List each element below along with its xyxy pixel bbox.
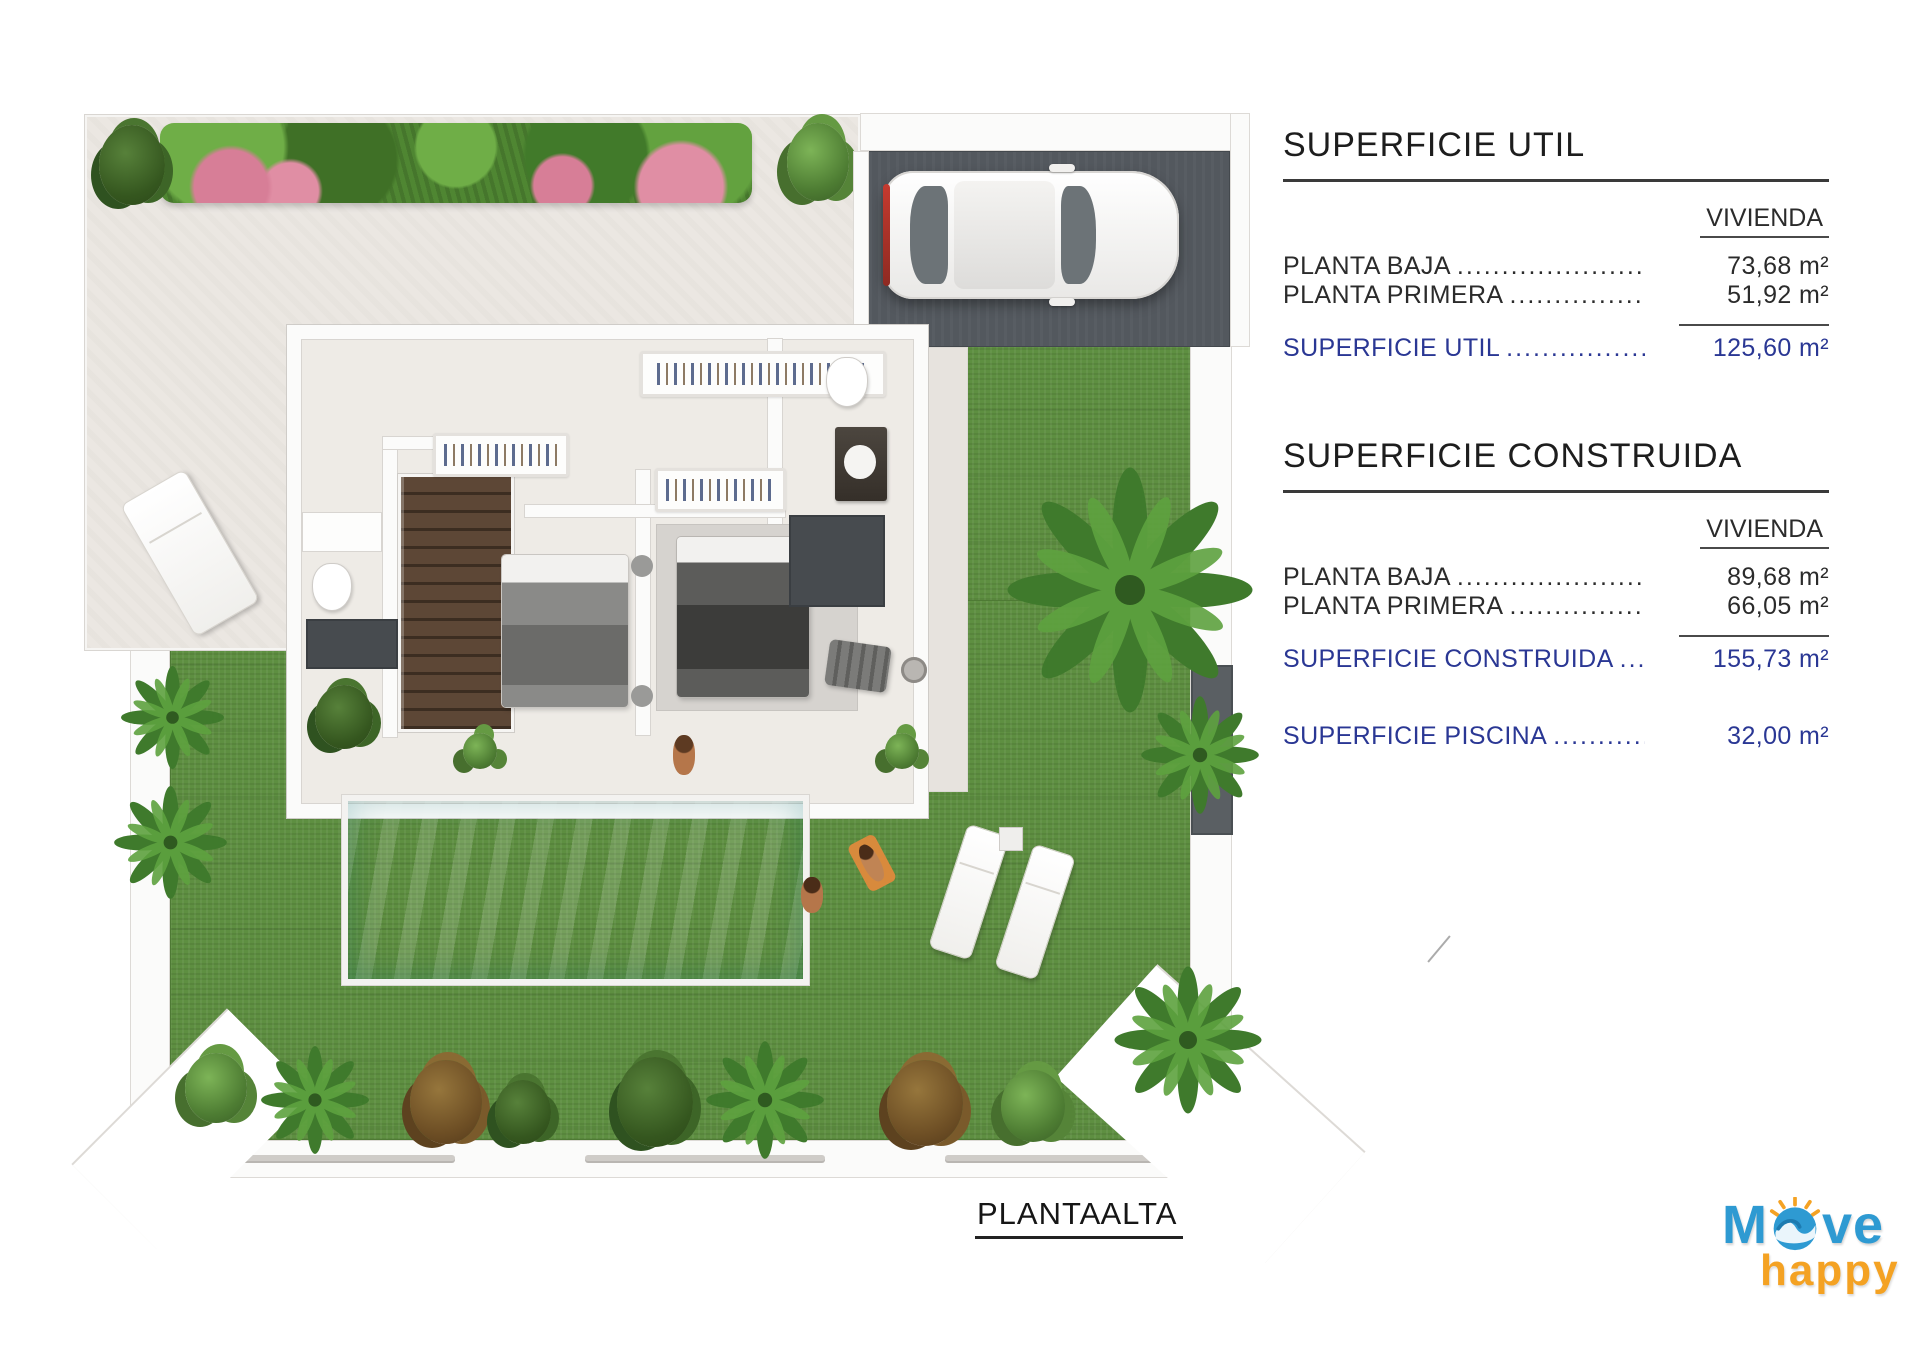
garden-bush	[617, 1057, 693, 1147]
wardrobe	[433, 433, 569, 477]
bed-throw	[502, 625, 628, 685]
total-row-superficie-piscina: SUPERFICIE PISCINA .....................…	[1283, 722, 1829, 751]
deck-table	[901, 657, 927, 683]
side-table	[999, 827, 1023, 851]
data-row-planta-baja: PLANTA BAJA ............................…	[1283, 252, 1829, 281]
logo-sun-wave-icon	[1769, 1197, 1821, 1253]
bathroom-vanity	[835, 427, 887, 501]
data-row-planta-primera: PLANTA PRIMERA .........................…	[1283, 281, 1829, 310]
deck-chaise	[824, 639, 892, 693]
fern	[120, 665, 225, 770]
stray-mark	[1427, 935, 1450, 962]
car-taillight	[883, 184, 890, 286]
car-mirror	[1049, 298, 1076, 306]
deck-plant	[463, 733, 497, 769]
palm-plant	[260, 1045, 370, 1155]
palm-plant	[705, 1040, 825, 1160]
interior-wall	[383, 437, 397, 737]
shower	[306, 619, 398, 669]
deck-plant	[885, 733, 919, 769]
staircase	[401, 477, 511, 729]
column-header-vivienda: VIVIENDA	[1283, 515, 1829, 549]
plan-edge-right	[1230, 113, 1250, 347]
swimming-pool	[342, 795, 809, 985]
bathroom-shelf	[303, 513, 381, 551]
nightstand	[631, 555, 653, 577]
potted-plant	[787, 123, 849, 201]
total-row-superficie-construida: SUPERFICIE CONSTRUIDA ..................…	[1283, 645, 1829, 674]
hedge-planter	[160, 123, 752, 203]
total-rule	[1679, 324, 1829, 326]
person-on-deck	[673, 735, 695, 775]
garden-bush	[315, 685, 373, 749]
potted-plant	[99, 125, 165, 205]
logo-word-happy: happy	[1760, 1246, 1912, 1296]
section-title-superficie-util: SUPERFICIE UTIL	[1283, 126, 1829, 182]
bed-throw	[677, 605, 809, 669]
wardrobe	[655, 468, 786, 512]
total-row-superficie-util: SUPERFICIE UTIL ........................…	[1283, 334, 1829, 363]
plan-title: PLANTA ALTA	[975, 1196, 1183, 1239]
car-mirror	[1049, 164, 1076, 172]
data-row-planta-baja: PLANTA BAJA ............................…	[1283, 563, 1829, 592]
floor-plan	[65, 85, 1250, 1180]
palm-tree	[1005, 465, 1255, 715]
car-rear-window	[910, 186, 948, 283]
fence-track	[945, 1155, 1175, 1161]
toilet	[312, 563, 352, 611]
toilet	[826, 357, 868, 407]
nightstand	[631, 685, 653, 707]
palm-tree	[1113, 965, 1263, 1115]
data-row-planta-primera: PLANTA PRIMERA .........................…	[1283, 592, 1829, 621]
garden-bush	[887, 1060, 963, 1146]
palm-tree	[1140, 695, 1260, 815]
move-happy-logo: M ve happy	[1722, 1194, 1912, 1324]
car-roof	[954, 181, 1055, 289]
garden-bush	[1001, 1070, 1065, 1142]
person-at-pool-edge	[801, 877, 823, 913]
shower	[789, 515, 885, 607]
garage-pillar	[853, 151, 869, 347]
garden-bush	[495, 1080, 551, 1144]
total-rule	[1679, 635, 1829, 637]
column-header-vivienda: VIVIENDA	[1283, 204, 1829, 238]
car	[883, 171, 1179, 299]
garden-bush	[185, 1053, 247, 1123]
section-title-superficie-construida: SUPERFICIE CONSTRUIDA	[1283, 437, 1829, 493]
surface-data-panel: SUPERFICIE UTIL VIVIENDA PLANTA BAJA ...…	[1283, 126, 1829, 751]
fern	[113, 785, 228, 900]
car-windshield	[1061, 186, 1097, 283]
garage-roof-edge	[860, 113, 1250, 151]
garden-bush	[410, 1060, 482, 1144]
